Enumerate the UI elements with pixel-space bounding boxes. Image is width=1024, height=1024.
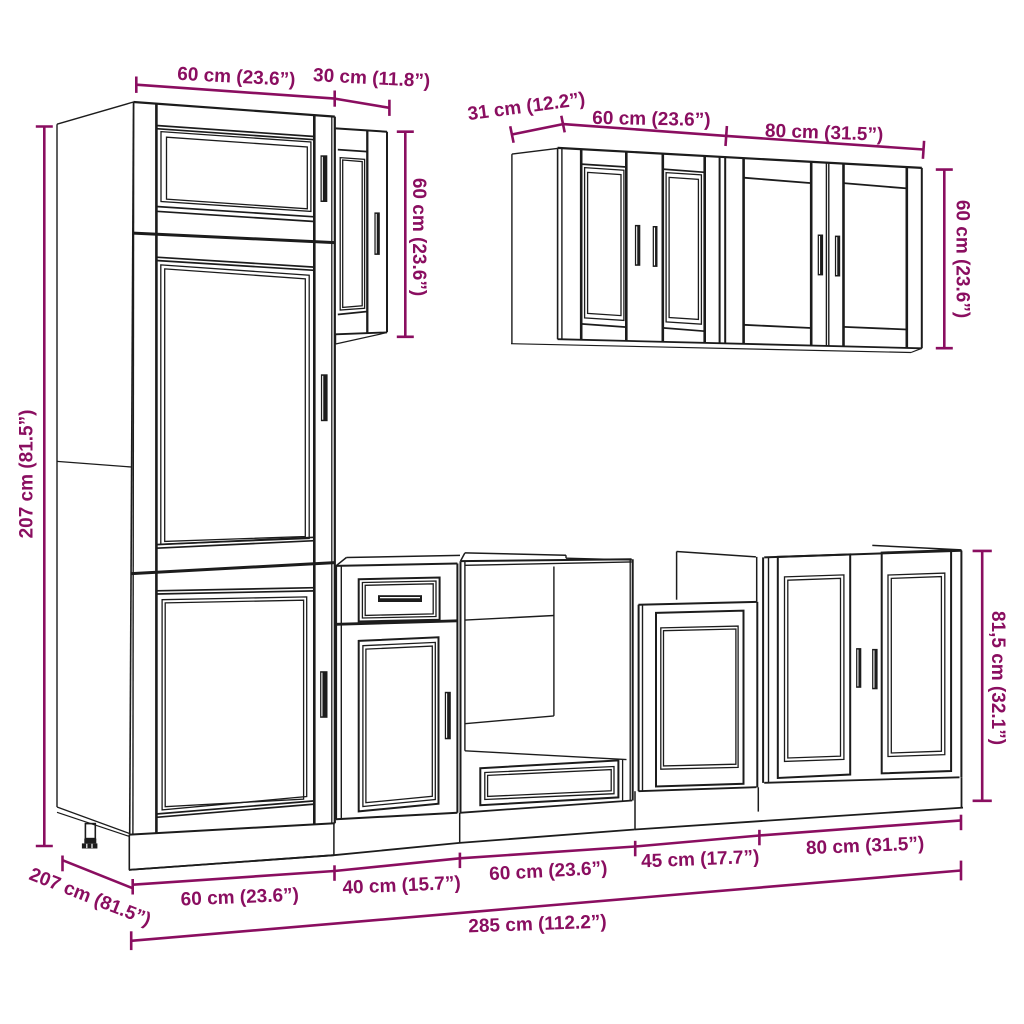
svg-text:207 cm (81.5”): 207 cm (81.5”)	[17, 410, 38, 539]
svg-text:81,5 cm (32.1”): 81,5 cm (32.1”)	[987, 611, 1008, 745]
svg-text:60 cm (23.6”): 60 cm (23.6”)	[952, 200, 973, 318]
svg-text:60 cm (23.6”): 60 cm (23.6”)	[408, 178, 429, 296]
svg-text:80 cm (31.5”): 80 cm (31.5”)	[765, 121, 884, 146]
svg-text:60 cm (23.6”): 60 cm (23.6”)	[592, 108, 711, 131]
